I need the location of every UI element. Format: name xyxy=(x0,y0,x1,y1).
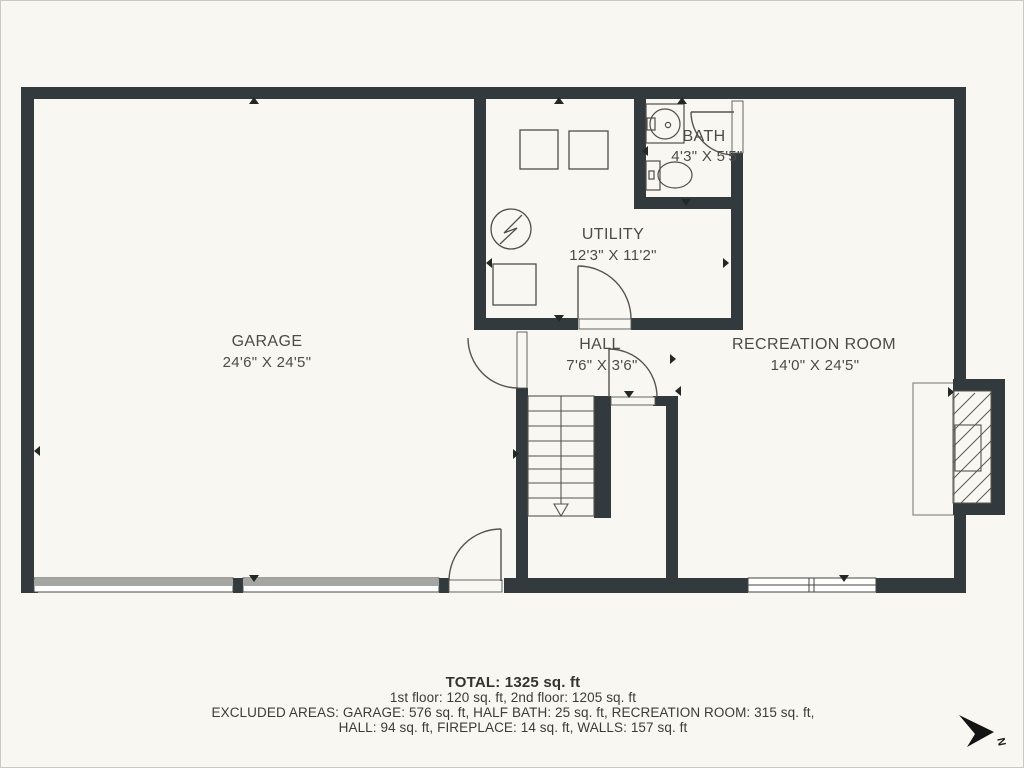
wall-top xyxy=(21,87,966,99)
summary-floors: 1st floor: 120 sq. ft, 2nd floor: 1205 s… xyxy=(390,690,636,705)
toilet-flush-icon xyxy=(649,171,654,179)
area-summary: TOTAL: 1325 sq. ft 1st floor: 120 sq. ft… xyxy=(211,674,814,735)
room-label-recreation: RECREATION ROOM xyxy=(732,336,896,353)
wall-utility-rec xyxy=(731,153,743,330)
floor-plan-canvas: GARAGE 24'6" X 24'5" UTILITY 12'3" X 11'… xyxy=(1,1,1024,768)
room-dim-recreation: 14'0" X 24'5" xyxy=(771,357,860,374)
room-dim-utility: 12'3" X 11'2" xyxy=(569,247,657,264)
washer-icon xyxy=(520,130,558,169)
wall-recdoor-stub xyxy=(653,396,678,406)
room-labels: GARAGE 24'6" X 24'5" UTILITY 12'3" X 11'… xyxy=(223,128,896,374)
water-heater-symbol xyxy=(500,215,522,244)
room-dim-bath: 4'3" X 5'5" xyxy=(671,148,742,165)
garage-door-right xyxy=(243,578,439,592)
wall-hall-top-right xyxy=(631,318,743,330)
utility-sink-icon xyxy=(493,264,536,305)
wall-bottom-pier xyxy=(233,578,243,593)
door-garage-hall xyxy=(468,338,518,388)
wall-left xyxy=(21,87,34,593)
summary-excluded-1: EXCLUDED AREAS: GARAGE: 576 sq. ft, HALF… xyxy=(211,705,814,720)
wall-garage-utility xyxy=(474,99,486,320)
north-label: N xyxy=(994,737,1007,747)
door-utility xyxy=(578,266,631,319)
wall-bottom-seg xyxy=(504,578,748,593)
north-compass: N xyxy=(959,715,1008,747)
opening-bath xyxy=(732,101,743,153)
fireplace xyxy=(913,379,1005,515)
staircase xyxy=(528,396,594,516)
wall-bottom-pier xyxy=(439,578,449,593)
room-label-garage: GARAGE xyxy=(232,333,303,350)
room-dim-garage: 24'6" X 24'5" xyxy=(223,354,312,371)
sink-drain-icon xyxy=(665,122,670,127)
wall-bath-left xyxy=(634,99,646,209)
floor-plan-page: GARAGE 24'6" X 24'5" UTILITY 12'3" X 11'… xyxy=(0,0,1024,768)
wall-hall-rec xyxy=(666,396,678,593)
wall-right-upper xyxy=(954,87,966,379)
opening-hall-rec xyxy=(611,397,655,405)
toilet-bowl-icon xyxy=(658,162,692,188)
door-rear-garage xyxy=(449,529,501,581)
utility-fixtures xyxy=(491,130,608,305)
wall-bath-bottom xyxy=(634,197,743,209)
wall-hall-top-left xyxy=(474,318,578,330)
wall-right-lower xyxy=(954,515,966,593)
garage-door-left xyxy=(34,578,233,592)
firebox-hatch xyxy=(953,393,991,503)
room-label-utility: UTILITY xyxy=(582,226,644,243)
summary-total: TOTAL: 1325 sq. ft xyxy=(446,674,581,691)
dryer-icon xyxy=(569,131,608,169)
room-label-bath: BATH xyxy=(682,128,725,145)
wall-bottom-seg xyxy=(876,578,964,593)
north-arrow-icon xyxy=(959,715,994,747)
vanity-icon xyxy=(646,104,684,143)
room-dim-hall: 7'6" X 3'6" xyxy=(566,357,637,374)
window-rec-room xyxy=(748,578,876,592)
wall-stairs-right xyxy=(594,396,611,518)
bath-fixtures xyxy=(646,104,692,190)
wall-garage-stairs xyxy=(516,388,528,593)
opening-utility-hall xyxy=(579,319,631,329)
opening-garage-hall xyxy=(517,332,527,388)
fireplace-hearth xyxy=(913,383,954,515)
summary-excluded-2: HALL: 94 sq. ft, FIREPLACE: 14 sq. ft, W… xyxy=(339,720,688,735)
room-label-hall: HALL xyxy=(579,336,621,353)
stairs-direction-arrow xyxy=(554,504,568,516)
water-heater-icon xyxy=(491,209,531,249)
opening-rear-door xyxy=(449,580,502,592)
